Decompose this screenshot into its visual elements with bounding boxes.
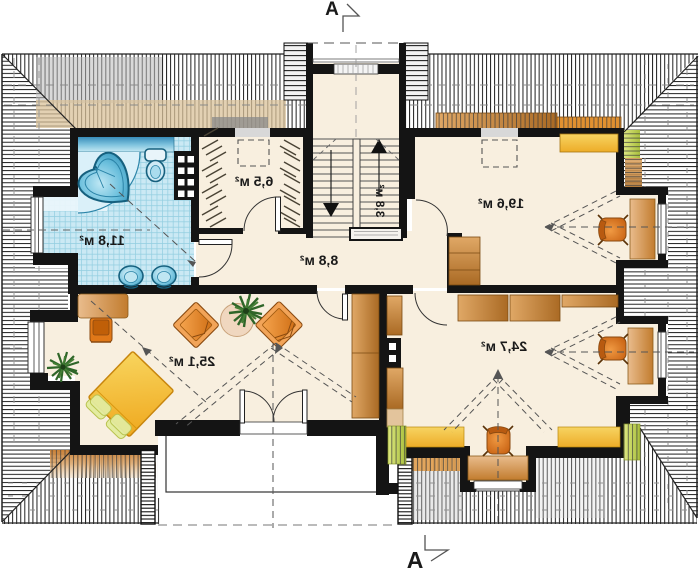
svg-text:11,8 м²: 11,8 м² — [79, 232, 125, 248]
svg-text:6,5 м²: 6,5 м² — [234, 173, 273, 189]
svg-text:19,6 м²: 19,6 м² — [478, 195, 524, 211]
svg-text:A: A — [407, 547, 424, 568]
svg-text:A: A — [325, 0, 339, 20]
svg-text:25,1 м²: 25,1 м² — [169, 353, 215, 369]
svg-text:3,8 м²: 3,8 м² — [373, 185, 387, 218]
svg-text:24,7 м²: 24,7 м² — [481, 338, 527, 354]
svg-text:8,8 м²: 8,8 м² — [299, 252, 338, 268]
